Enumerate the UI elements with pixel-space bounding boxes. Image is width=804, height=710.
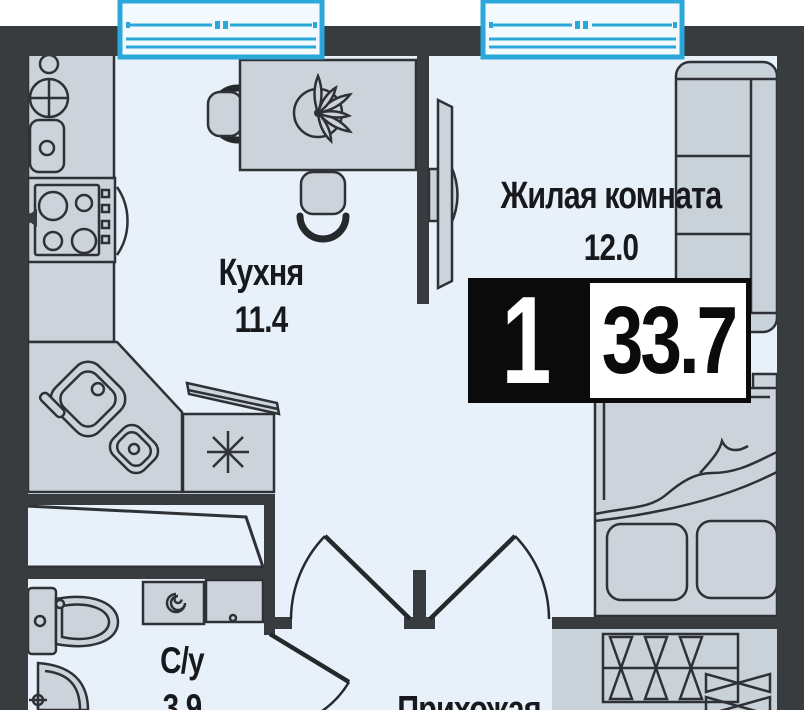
chair-icon — [208, 88, 242, 140]
window-icon — [120, 1, 322, 57]
room-area-living: 12.0 — [483, 229, 739, 268]
room-label-living: Жилая комната — [483, 177, 739, 217]
floor-plan: Жилая комната 12.0 Кухня 11.4 С/у 3.9 Пр… — [0, 0, 804, 710]
room-label-kitchen: Кухня — [181, 254, 341, 294]
washing-machine-icon — [143, 582, 204, 624]
total-area-value: 33.7 — [601, 286, 734, 396]
gas-stove-icon — [24, 178, 128, 262]
shower-icon — [26, 506, 263, 567]
total-area-badge: 33.7 — [585, 278, 751, 403]
room-area-kitchen: 11.4 — [181, 301, 341, 340]
pillow-icon — [607, 524, 687, 600]
bed-icon — [595, 388, 777, 616]
room-label-hallway: Прихожая — [365, 691, 573, 710]
rooms-count-value: 1 — [502, 270, 552, 412]
rooms-count-badge: 1 — [468, 278, 585, 403]
window-icon — [483, 1, 682, 57]
bathroom-cabinet — [206, 580, 263, 622]
room-label-bathroom: С/у — [126, 642, 238, 681]
pillow-icon — [697, 521, 777, 598]
room-area-bathroom: 3.9 — [126, 689, 238, 710]
closet-hangers-icon — [552, 629, 777, 710]
